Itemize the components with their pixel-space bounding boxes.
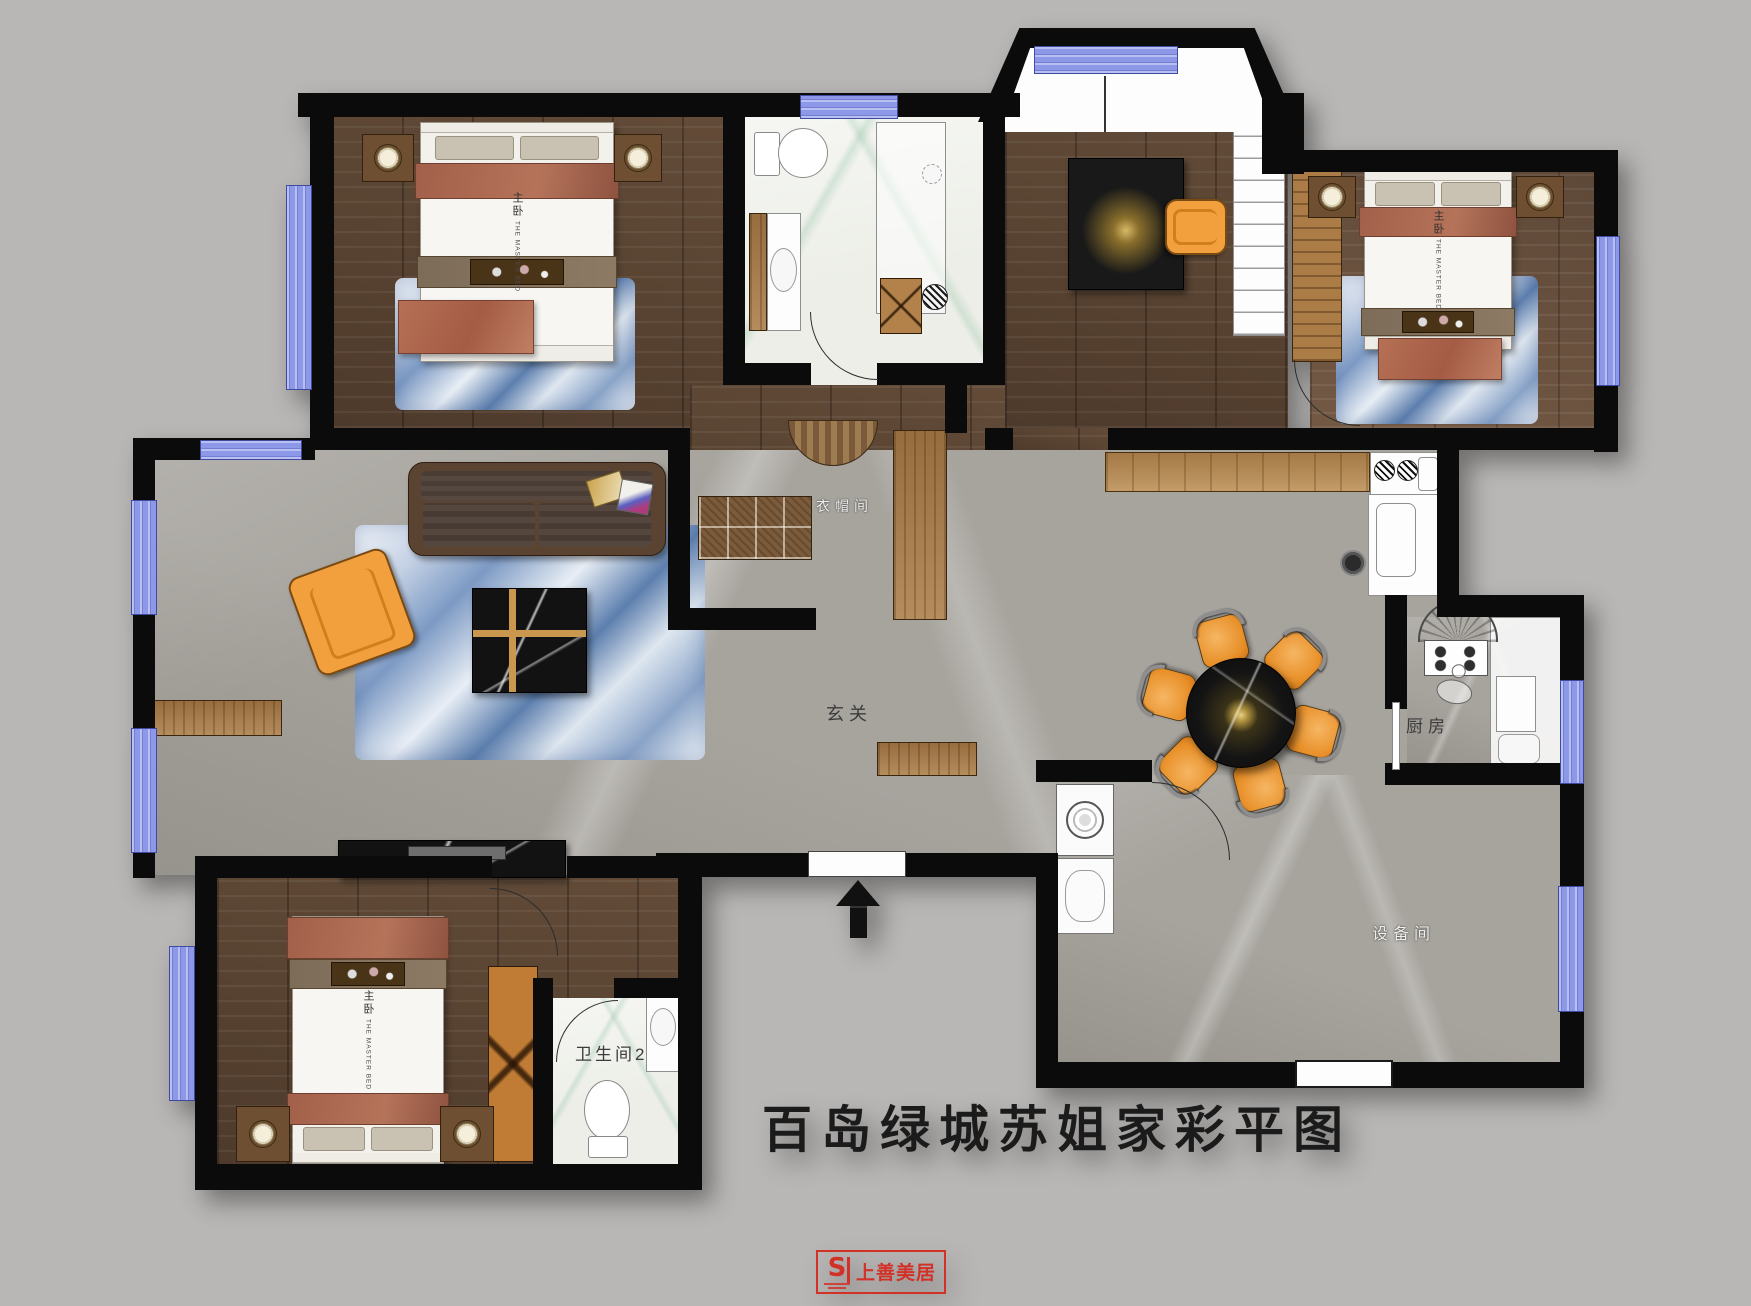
bed-sheet (1365, 237, 1511, 308)
floor-plan: 主卧 THE MASTER BED 主卧 THE MASTER BED (0, 0, 1751, 1306)
wall-segment (1288, 428, 1618, 450)
sliding-door (1392, 702, 1400, 770)
nightstand (362, 134, 414, 182)
shower-head-icon (922, 164, 942, 184)
bed-topright: 主卧 THE MASTER BED (1364, 170, 1512, 350)
foot-blanket (398, 300, 534, 354)
pillow (371, 1127, 433, 1151)
coffee-table-inlay (473, 630, 586, 637)
window-bedroom-topright (1596, 236, 1620, 386)
sink-icon (1376, 503, 1416, 577)
bed-blanket (415, 163, 619, 199)
brand-logo: S 上善美居 (816, 1250, 946, 1294)
laundry-sink-icon (1056, 858, 1114, 934)
toilet-bowl-icon (584, 1080, 630, 1140)
entry-door-opening (808, 851, 906, 877)
bed-tray-box (331, 962, 405, 986)
cloakroom-wardrobe (893, 430, 947, 620)
wall-segment (195, 856, 492, 878)
bar-counter (1105, 452, 1370, 492)
bed-pillows (421, 133, 613, 163)
stool-icon (1340, 550, 1366, 576)
foot-blanket (1378, 338, 1502, 380)
wall-segment (298, 93, 1020, 117)
bed-blanket (1359, 207, 1517, 237)
wall-segment (668, 428, 690, 630)
shoe-cabinet (698, 496, 812, 560)
window-equipment (1558, 886, 1584, 1012)
drain-icon (922, 284, 948, 310)
bed-sheet (293, 989, 443, 1093)
washer-icon (1056, 784, 1114, 856)
sofa (408, 462, 666, 556)
hall-console (877, 742, 977, 776)
sink-icon (1418, 457, 1438, 491)
cloakroom-label: 衣帽间 (816, 496, 873, 516)
laundry-cabinet (880, 278, 922, 334)
pillow (520, 136, 599, 160)
kitchen-sink-icon (1498, 734, 1540, 764)
bed-tray (1361, 308, 1515, 336)
sofa-seat (423, 503, 535, 547)
wall-segment (1437, 450, 1459, 617)
bed-bottomleft: 主卧 THE MASTER BED (292, 916, 444, 1164)
equipment-label: 设备间 (1372, 920, 1435, 944)
wall-segment (668, 608, 816, 630)
nightstand (440, 1106, 494, 1162)
logo-mark: S (828, 1255, 847, 1281)
floor-equipment-room (1058, 775, 1560, 1064)
window-living-lower (131, 728, 157, 853)
toilet-bowl-icon (778, 128, 828, 178)
bed-tray-box (470, 259, 563, 284)
wall-segment (310, 93, 334, 450)
pillow (303, 1127, 365, 1151)
wall-segment (723, 363, 811, 385)
logo-tick (828, 1287, 846, 1289)
window-bathroom1 (800, 95, 898, 119)
arrow-shaft (850, 906, 867, 938)
sink-icon (650, 1008, 676, 1046)
entry-arrow-icon (836, 880, 880, 938)
wardrobe-bottomleft (488, 966, 538, 1162)
wall-segment (195, 1164, 702, 1190)
hall-label: 玄关 (826, 700, 872, 726)
bed-blanket (287, 917, 449, 959)
floor-plan-canvas: 主卧 THE MASTER BED 主卧 THE MASTER BED (0, 0, 1751, 1306)
wall-segment (195, 856, 217, 1190)
pillow (1375, 182, 1435, 206)
bed-headboard (421, 123, 613, 133)
pillow (1441, 182, 1501, 206)
dining-table (1186, 658, 1296, 768)
burner-icon (1374, 460, 1395, 481)
window-equipment-bottom (1295, 1060, 1393, 1088)
wall-segment (678, 856, 702, 1190)
kitchen-label: 厨房 (1406, 712, 1450, 737)
vanity-cabinet (749, 213, 767, 331)
plan-title: 百岛绿城苏姐家彩平图 (762, 1090, 1352, 1162)
logo-mark-icon: S (824, 1255, 850, 1289)
wall-segment (985, 428, 1013, 450)
window-bedroom-topleft (286, 185, 312, 390)
window-kitchen (1560, 680, 1584, 784)
bed-pillows (293, 1125, 443, 1153)
nightstand (236, 1106, 290, 1162)
fridge-icon (1496, 676, 1536, 732)
wall-segment (1288, 150, 1618, 172)
nightstand (614, 134, 662, 182)
wall-segment (1385, 763, 1584, 785)
burner-icon (1397, 460, 1418, 481)
wall-segment (945, 385, 967, 433)
toilet-icon (754, 132, 780, 176)
bed-tray-box (1402, 311, 1474, 333)
bay-window-mullion (1104, 76, 1106, 132)
logo-brand: 上善美居 (856, 1258, 936, 1285)
floor-threshold (1008, 428, 1108, 452)
wall-segment (904, 853, 1058, 877)
window-living-top (200, 440, 302, 460)
wall-segment (1385, 595, 1407, 709)
toilet-icon (588, 1136, 628, 1158)
bed-headboard (293, 1153, 443, 1163)
bed-tray (417, 256, 617, 288)
wall-segment (723, 93, 745, 385)
bed-sheet (421, 199, 613, 256)
side-bench (152, 700, 282, 736)
bay-window (1034, 46, 1178, 74)
coffee-table-inlay (509, 589, 516, 692)
window-bedroom-bottomleft (169, 946, 195, 1101)
bed-blanket (287, 1093, 449, 1125)
bed-tray (289, 959, 447, 989)
bed-headboard (1365, 171, 1511, 181)
bed-pillows (1365, 181, 1511, 207)
door-arc-bedroom-topright (1294, 360, 1360, 426)
wall-segment (533, 978, 553, 1168)
window-living-upper (131, 500, 157, 615)
desk-chair (1165, 199, 1227, 255)
wall-segment (877, 363, 1005, 385)
wall-segment (1036, 760, 1152, 782)
wall-segment (310, 428, 690, 450)
wall-segment (1036, 853, 1058, 1088)
person-head (1450, 663, 1467, 680)
nightstand (1516, 176, 1564, 218)
wall-segment (614, 978, 680, 998)
coffee-table (472, 588, 587, 693)
wall-segment (983, 93, 1005, 385)
sofa-pillow (616, 478, 653, 515)
bathroom2-label: 卫生间2 (575, 1040, 647, 1065)
nightstand (1308, 176, 1356, 218)
sink-icon (770, 248, 797, 292)
pillow (435, 136, 514, 160)
logo-tick (824, 1283, 850, 1285)
arrow-head (836, 880, 880, 906)
